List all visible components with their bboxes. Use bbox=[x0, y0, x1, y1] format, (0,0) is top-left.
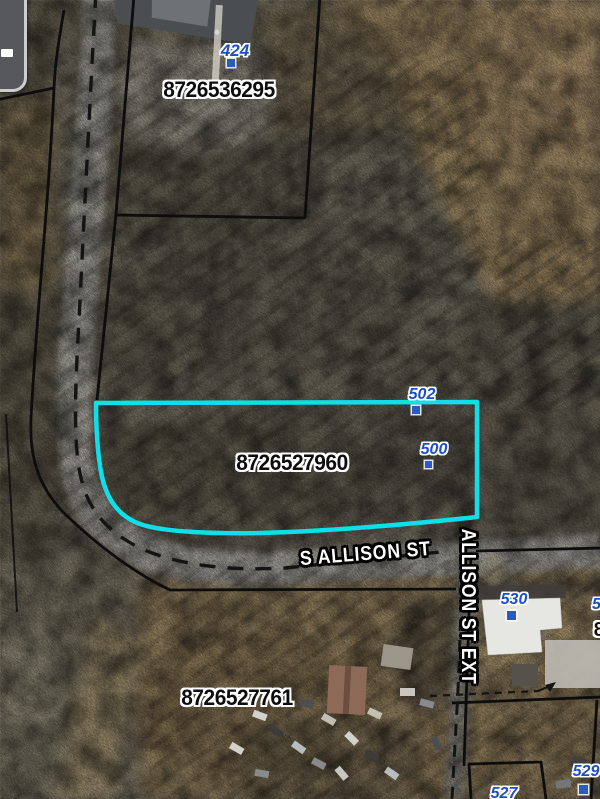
house-527-roof bbox=[327, 665, 367, 715]
terrain-texture bbox=[0, 0, 600, 799]
street-label-text: ALLISON ST EXT bbox=[458, 529, 478, 685]
address-label-424: 424 bbox=[213, 42, 257, 59]
address-label-edge-partial: 5 bbox=[592, 597, 600, 613]
gis-map-viewport[interactable]: 424 8726536295 502 500 8726527960 872652… bbox=[0, 0, 600, 799]
address-label-529: 529 bbox=[566, 764, 600, 780]
parcel-number-label-edge-partial: 8 bbox=[594, 620, 600, 640]
address-pin-424 bbox=[227, 59, 235, 67]
map-toolbar-panel[interactable] bbox=[0, 0, 27, 92]
address-label-527: 527 bbox=[484, 786, 524, 799]
address-pin-529 bbox=[579, 785, 588, 794]
address-pin-530 bbox=[507, 611, 516, 620]
aerial-map-canvas[interactable] bbox=[0, 0, 600, 799]
parcel-number-label-bottom: 8726527761 bbox=[160, 687, 314, 709]
minus-icon[interactable] bbox=[1, 49, 13, 57]
street-label-allison-st-ext: ALLISON ST EXT bbox=[456, 518, 478, 684]
address-label-530: 530 bbox=[494, 592, 534, 608]
address-pin-500 bbox=[425, 461, 432, 468]
address-label-500: 500 bbox=[414, 442, 454, 458]
address-pin-502 bbox=[412, 406, 420, 414]
parcel-number-label-highlighted: 8726527960 bbox=[216, 452, 368, 474]
address-label-502: 502 bbox=[402, 387, 442, 403]
parcel-number-label-top: 8726536295 bbox=[152, 79, 287, 101]
